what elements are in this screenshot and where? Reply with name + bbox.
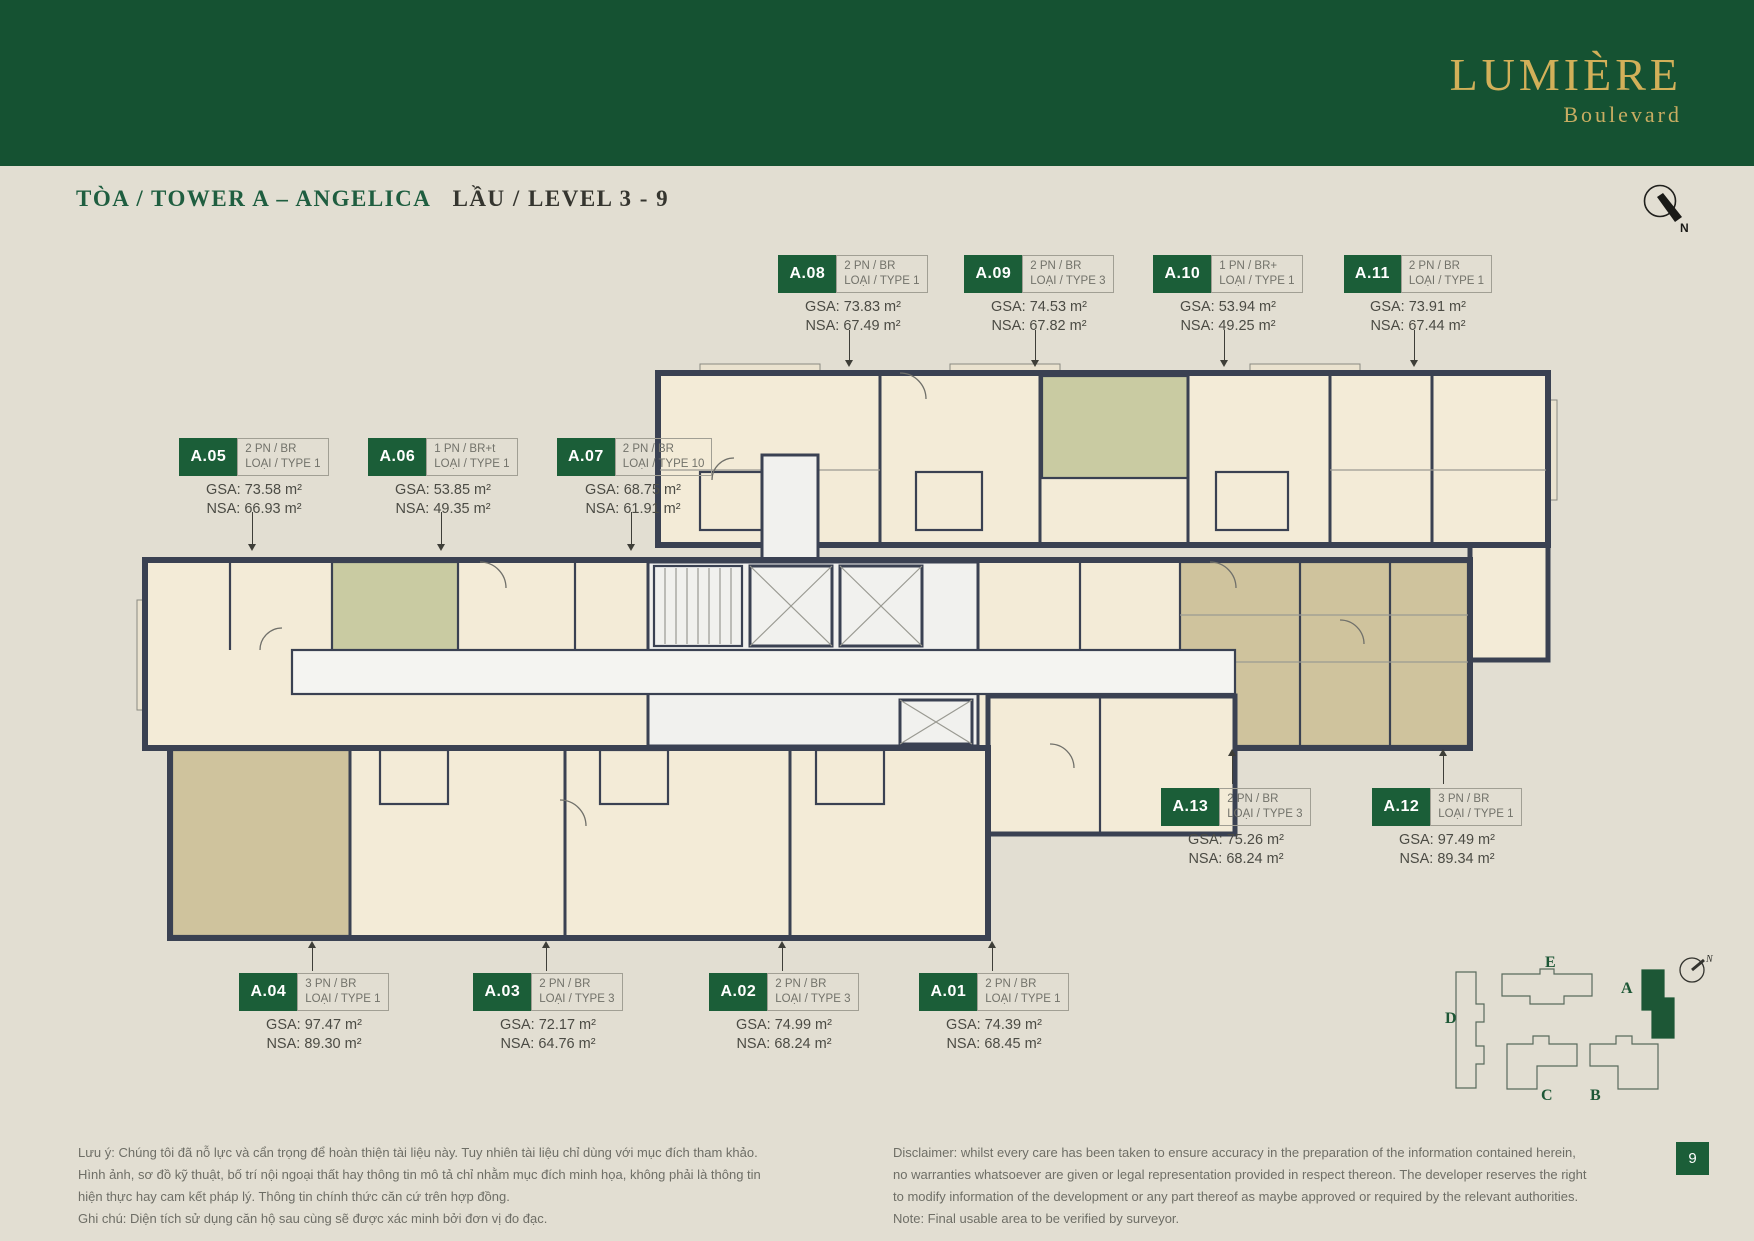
unit-loai: LOẠI / TYPE 1 — [1219, 274, 1294, 289]
unit-gsa: GSA: 68.75 m² — [557, 482, 709, 498]
unit-label-a03: A.032 PN / BRLOẠI / TYPE 3 GSA: 72.17 m²… — [472, 973, 624, 1052]
unit-code: A.10 — [1153, 255, 1211, 293]
unit-type: 2 PN / BR — [1409, 259, 1484, 274]
unit-type: 2 PN / BR — [1227, 792, 1302, 807]
unit-gsa: GSA: 74.99 m² — [708, 1017, 860, 1033]
disclaimer-vi-text: Lưu ý: Chúng tôi đã nỗ lực và cẩn trọng … — [78, 1142, 788, 1208]
unit-label-a07: A.072 PN / BRLOẠI / TYPE 10 GSA: 68.75 m… — [557, 438, 709, 517]
unit-label-a09: A.092 PN / BRLOẠI / TYPE 3 GSA: 74.53 m²… — [963, 255, 1115, 334]
leader-arrow-a08 — [849, 330, 850, 364]
unit-nsa: NSA: 89.30 m² — [238, 1036, 390, 1052]
unit-type: 2 PN / BR — [844, 259, 919, 274]
unit-type-box: 3 PN / BRLOẠI / TYPE 1 — [1430, 788, 1521, 826]
unit-type-box: 2 PN / BRLOẠI / TYPE 3 — [1219, 788, 1310, 826]
leader-arrow-a06 — [441, 512, 442, 548]
unit-loai: LOẠI / TYPE 3 — [1227, 807, 1302, 822]
unit-label-a11: A.112 PN / BRLOẠI / TYPE 1 GSA: 73.91 m²… — [1342, 255, 1494, 334]
unit-nsa: NSA: 61.91 m² — [557, 501, 709, 517]
unit-label-a08: A.082 PN / BRLOẠI / TYPE 1 GSA: 73.83 m²… — [777, 255, 929, 334]
unit-nsa: NSA: 67.82 m² — [963, 318, 1115, 334]
unit-nsa: NSA: 66.93 m² — [178, 501, 330, 517]
unit-type-box: 2 PN / BRLOẠI / TYPE 3 — [531, 973, 622, 1011]
unit-code: A.11 — [1344, 255, 1401, 293]
unit-code: A.09 — [964, 255, 1022, 293]
unit-type-box: 1 PN / BR+tLOẠI / TYPE 1 — [426, 438, 517, 476]
unit-gsa: GSA: 74.39 m² — [918, 1017, 1070, 1033]
unit-nsa: NSA: 67.49 m² — [777, 318, 929, 334]
unit-type-box: 2 PN / BRLOẠI / TYPE 1 — [836, 255, 927, 293]
leader-arrow-a02 — [782, 944, 783, 971]
unit-type-box: 2 PN / BRLOẠI / TYPE 10 — [615, 438, 713, 476]
unit-loai: LOẠI / TYPE 1 — [305, 992, 380, 1007]
unit-type: 3 PN / BR — [305, 977, 380, 992]
keyplan-letter-e: E — [1545, 954, 1556, 972]
unit-loai: LOẠI / TYPE 1 — [434, 457, 509, 472]
unit-loai: LOẠI / TYPE 3 — [775, 992, 850, 1007]
unit-nsa: NSA: 67.44 m² — [1342, 318, 1494, 334]
unit-label-a02: A.022 PN / BRLOẠI / TYPE 3 GSA: 74.99 m²… — [708, 973, 860, 1052]
unit-gsa: GSA: 97.49 m² — [1371, 832, 1523, 848]
unit-type: 2 PN / BR — [539, 977, 614, 992]
unit-gsa: GSA: 73.91 m² — [1342, 299, 1494, 315]
unit-type-box: 2 PN / BRLOẠI / TYPE 1 — [1401, 255, 1492, 293]
unit-gsa: GSA: 73.58 m² — [178, 482, 330, 498]
unit-loai: LOẠI / TYPE 1 — [985, 992, 1060, 1007]
unit-code: A.06 — [368, 438, 426, 476]
unit-type: 2 PN / BR — [1030, 259, 1105, 274]
unit-type: 2 PN / BR — [623, 442, 705, 457]
unit-type-box: 2 PN / BRLOẠI / TYPE 3 — [1022, 255, 1113, 293]
leader-arrow-a11 — [1414, 330, 1415, 364]
disclaimer-vietnamese: Lưu ý: Chúng tôi đã nỗ lực và cẩn trọng … — [78, 1142, 788, 1230]
unit-type: 2 PN / BR — [245, 442, 320, 457]
unit-nsa: NSA: 49.25 m² — [1152, 318, 1304, 334]
keyplan: N D E A C B — [1440, 952, 1752, 1110]
brochure-page: { "brand": {"name": "LUMIÈRE", "sub": "B… — [0, 0, 1754, 1241]
unit-gsa: GSA: 75.26 m² — [1160, 832, 1312, 848]
unit-code: A.07 — [557, 438, 615, 476]
unit-label-a04: A.043 PN / BRLOẠI / TYPE 1 GSA: 97.47 m²… — [238, 973, 390, 1052]
unit-nsa: NSA: 89.34 m² — [1371, 851, 1523, 867]
unit-label-a01: A.012 PN / BRLOẠI / TYPE 1 GSA: 74.39 m²… — [918, 973, 1070, 1052]
unit-gsa: GSA: 97.47 m² — [238, 1017, 390, 1033]
leader-arrow-a12 — [1443, 752, 1444, 784]
leader-arrow-a13 — [1232, 752, 1233, 784]
unit-loai: LOẠI / TYPE 10 — [623, 457, 705, 472]
leader-arrow-a04 — [312, 944, 313, 971]
unit-gsa: GSA: 53.85 m² — [367, 482, 519, 498]
unit-loai: LOẠI / TYPE 1 — [245, 457, 320, 472]
unit-type-box: 3 PN / BRLOẠI / TYPE 1 — [297, 973, 388, 1011]
unit-label-a12: A.123 PN / BRLOẠI / TYPE 1 GSA: 97.49 m²… — [1371, 788, 1523, 867]
leader-arrow-a01 — [992, 944, 993, 971]
keyplan-letter-b: B — [1590, 1087, 1601, 1105]
unit-label-a06: A.061 PN / BR+tLOẠI / TYPE 1 GSA: 53.85 … — [367, 438, 519, 517]
unit-code: A.01 — [919, 973, 977, 1011]
unit-code: A.12 — [1372, 788, 1430, 826]
unit-type-box: 2 PN / BRLOẠI / TYPE 1 — [237, 438, 328, 476]
unit-type-box: 2 PN / BRLOẠI / TYPE 3 — [767, 973, 858, 1011]
disclaimer-en-note: Note: Final usable area to be verified b… — [893, 1208, 1593, 1230]
unit-loai: LOẠI / TYPE 1 — [844, 274, 919, 289]
unit-loai: LOẠI / TYPE 3 — [539, 992, 614, 1007]
unit-label-a13: A.132 PN / BRLOẠI / TYPE 3 GSA: 75.26 m²… — [1160, 788, 1312, 867]
unit-nsa: NSA: 64.76 m² — [472, 1036, 624, 1052]
unit-code: A.13 — [1161, 788, 1219, 826]
unit-type: 3 PN / BR — [1438, 792, 1513, 807]
unit-code: A.03 — [473, 973, 531, 1011]
keyplan-letter-a: A — [1621, 980, 1633, 998]
unit-gsa: GSA: 73.83 m² — [777, 299, 929, 315]
unit-gsa: GSA: 53.94 m² — [1152, 299, 1304, 315]
unit-code: A.05 — [179, 438, 237, 476]
keyplan-letter-d: D — [1445, 1010, 1457, 1028]
unit-label-a10: A.101 PN / BR+LOẠI / TYPE 1 GSA: 53.94 m… — [1152, 255, 1304, 334]
unit-nsa: NSA: 68.24 m² — [1160, 851, 1312, 867]
leader-arrow-a03 — [546, 944, 547, 971]
unit-gsa: GSA: 72.17 m² — [472, 1017, 624, 1033]
unit-nsa: NSA: 68.45 m² — [918, 1036, 1070, 1052]
unit-gsa: GSA: 74.53 m² — [963, 299, 1115, 315]
unit-loai: LOẠI / TYPE 3 — [1030, 274, 1105, 289]
unit-code: A.08 — [778, 255, 836, 293]
keyplan-north-label: N — [1705, 954, 1714, 965]
unit-type: 2 PN / BR — [985, 977, 1060, 992]
disclaimer-vi-note: Ghi chú: Diện tích sử dụng căn hộ sau cù… — [78, 1208, 788, 1230]
unit-code: A.04 — [239, 973, 297, 1011]
leader-arrow-a07 — [631, 512, 632, 548]
unit-nsa: NSA: 68.24 m² — [708, 1036, 860, 1052]
unit-loai: LOẠI / TYPE 1 — [1438, 807, 1513, 822]
leader-arrow-a10 — [1224, 330, 1225, 364]
unit-type: 1 PN / BR+t — [434, 442, 509, 457]
unit-type: 2 PN / BR — [775, 977, 850, 992]
unit-code: A.02 — [709, 973, 767, 1011]
unit-type-box: 1 PN / BR+LOẠI / TYPE 1 — [1211, 255, 1302, 293]
leader-arrow-a05 — [252, 512, 253, 548]
unit-nsa: NSA: 49.35 m² — [367, 501, 519, 517]
leader-arrow-a09 — [1035, 330, 1036, 364]
unit-loai: LOẠI / TYPE 1 — [1409, 274, 1484, 289]
unit-type: 1 PN / BR+ — [1219, 259, 1294, 274]
disclaimer-english: Disclaimer: whilst every care has been t… — [893, 1142, 1593, 1230]
keyplan-letter-c: C — [1541, 1087, 1553, 1105]
unit-type-box: 2 PN / BRLOẠI / TYPE 1 — [977, 973, 1068, 1011]
page-number: 9 — [1676, 1142, 1709, 1175]
disclaimer-en-text: Disclaimer: whilst every care has been t… — [893, 1142, 1593, 1208]
unit-label-a05: A.052 PN / BRLOẠI / TYPE 1 GSA: 73.58 m²… — [178, 438, 330, 517]
